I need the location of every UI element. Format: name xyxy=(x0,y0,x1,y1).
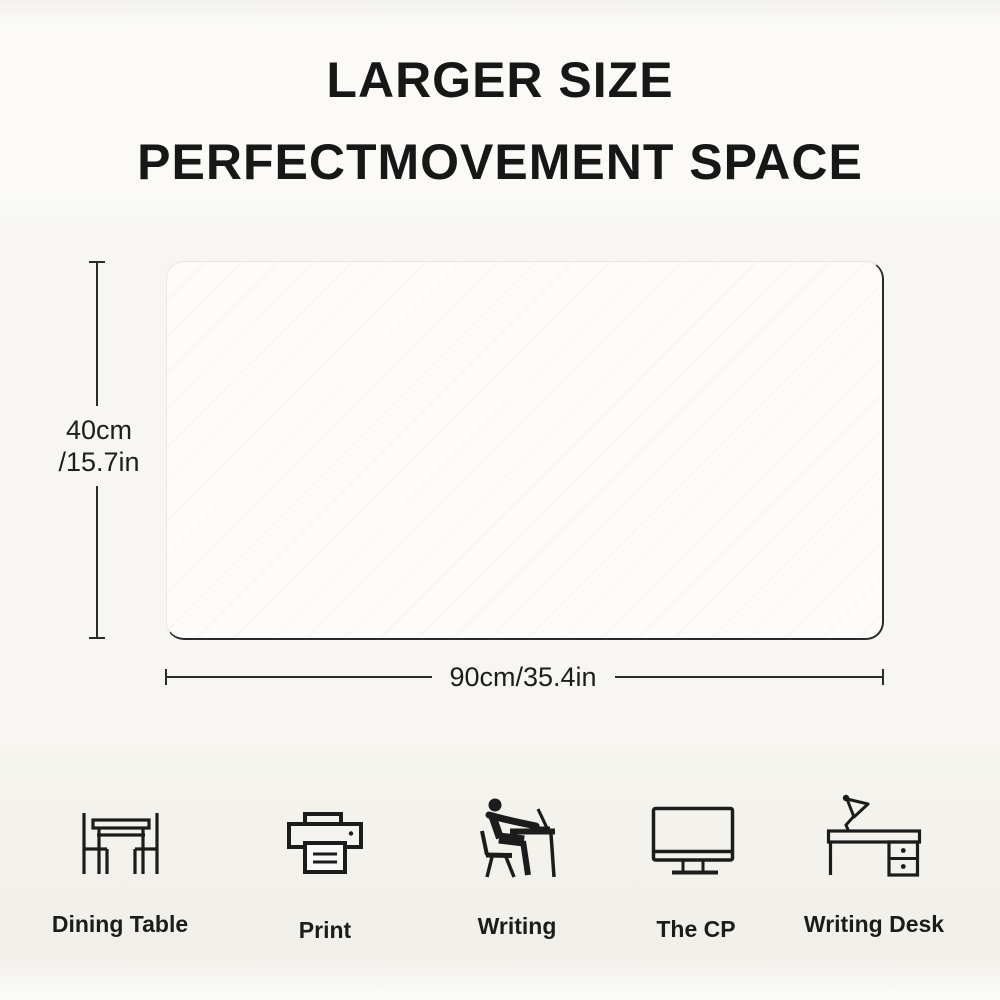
usecase-label-writing-desk: Writing Desk xyxy=(764,911,984,938)
printer-icon xyxy=(284,806,366,876)
writing-desk-icon xyxy=(820,791,928,879)
width-dimension-line-right xyxy=(615,676,883,678)
computer-monitor-icon xyxy=(649,804,737,876)
height-dimension-line-upper xyxy=(96,262,98,406)
title-band-background xyxy=(0,0,1000,228)
width-dimension-line-left xyxy=(166,676,432,678)
height-dimension-label-cm: 40cm xyxy=(35,414,163,446)
desk-mat-illustration xyxy=(166,261,884,640)
height-dimension-cap-bottom xyxy=(89,637,105,639)
dining-table-icon xyxy=(75,810,165,876)
height-dimension-label-in: /15.7in xyxy=(35,446,163,478)
width-dimension-label: 90cm/35.4in xyxy=(433,662,613,692)
usecase-label-print: Print xyxy=(215,917,435,944)
height-dimension-label: 40cm /15.7in xyxy=(35,414,163,478)
writing-person-icon xyxy=(474,793,566,879)
title-line-2: PERFECTMOVEMENT SPACE xyxy=(0,137,1000,187)
usecase-label-dining-table: Dining Table xyxy=(10,911,230,938)
title-line-1: LARGER SIZE xyxy=(0,55,1000,105)
width-dimension-cap-right xyxy=(882,669,884,685)
product-infographic: LARGER SIZE PERFECTMOVEMENT SPACE 40cm /… xyxy=(0,0,1000,1000)
height-dimension-line-lower xyxy=(96,486,98,638)
